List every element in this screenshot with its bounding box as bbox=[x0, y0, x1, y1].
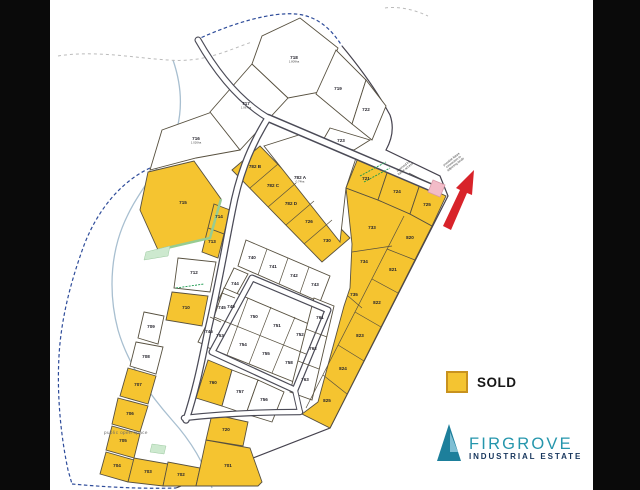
lot-number-label: 708 bbox=[142, 354, 150, 359]
lot-number-label: 763 bbox=[301, 377, 309, 382]
lot-number-label: 758 bbox=[285, 360, 293, 365]
legend-sold-label: SOLD bbox=[477, 375, 517, 390]
lot-number-label: 743 bbox=[311, 282, 319, 287]
lot-number-label: 740 bbox=[248, 255, 256, 260]
lot-number-label: 823 bbox=[356, 333, 364, 338]
lot-number-label: 755 bbox=[262, 351, 270, 356]
lot-number-label: 702 bbox=[177, 472, 185, 477]
lot-number-label: 723 bbox=[337, 138, 345, 143]
lot-number-label: 782 D bbox=[285, 201, 298, 206]
lot-number-label: 721 bbox=[362, 176, 370, 181]
logo-title: FIRGROVE bbox=[469, 436, 582, 452]
lot-number-label: 762 bbox=[309, 346, 317, 351]
lot-number-label: 703 bbox=[144, 469, 152, 474]
right-black-bar bbox=[593, 0, 640, 490]
sold-color-swatch bbox=[446, 371, 468, 393]
lot-number-label: 742 bbox=[290, 273, 298, 278]
lot-number-label: 750 bbox=[250, 314, 258, 319]
lot-number-label: 706 bbox=[126, 411, 134, 416]
lot-number-label: 824 bbox=[339, 366, 347, 371]
lot-number-label: 760 bbox=[209, 380, 217, 385]
lot-number-label: 701 bbox=[224, 463, 232, 468]
lot-number-label: 820 bbox=[406, 235, 414, 240]
lot-number-label: 757 bbox=[236, 389, 244, 394]
green-open-area bbox=[150, 444, 166, 454]
logo-triangle-icon bbox=[436, 423, 462, 463]
lot-number-label: 752 bbox=[296, 332, 304, 337]
lot-number-label: 730 bbox=[323, 238, 331, 243]
lot-number-label: 751 bbox=[273, 323, 281, 328]
lot-area-label: 1.026ha bbox=[191, 141, 202, 145]
screenshot-stage: reserved forfuture accesspossible future… bbox=[0, 0, 640, 490]
lot-number-label: 782 B bbox=[249, 164, 262, 169]
lot-number-label: 720 bbox=[222, 427, 230, 432]
lot-number-label: 735 bbox=[350, 292, 358, 297]
lot-number-label: 714 bbox=[215, 214, 223, 219]
legend-sold: SOLD bbox=[446, 371, 517, 393]
logo-subtitle: INDUSTRIAL ESTATE bbox=[469, 452, 582, 462]
lot-number-label: 724 bbox=[393, 189, 401, 194]
lot-number-label: 712 bbox=[190, 270, 198, 275]
lot-area-label: 0.74ha bbox=[296, 180, 305, 184]
firgrove-logo: FIRGROVE INDUSTRIAL ESTATE bbox=[436, 423, 582, 463]
lot-712 bbox=[174, 258, 216, 292]
lot-area-label: 1.067ha bbox=[241, 106, 252, 110]
lot-number-label: 761 bbox=[316, 315, 324, 320]
lot-number-label: 754 bbox=[239, 342, 247, 347]
lot-number-label: 744 bbox=[231, 281, 239, 286]
lot-number-label: 782 C bbox=[267, 183, 280, 188]
lot-number-label: 704 bbox=[113, 463, 121, 468]
lot-number-label: 725 bbox=[423, 202, 431, 207]
estate-site-plan-map: reserved forfuture accesspossible future… bbox=[0, 0, 640, 490]
lot-number-label: 745 bbox=[218, 305, 226, 310]
lot-number-label: 705 bbox=[119, 438, 127, 443]
lot-number-label: 722 bbox=[362, 107, 370, 112]
lot-number-label: 713 bbox=[208, 239, 216, 244]
lot-number-label: 821 bbox=[389, 267, 397, 272]
lot-number-label: 749 bbox=[227, 304, 235, 309]
lot-number-label: 715 bbox=[179, 200, 187, 205]
lot-number-label: 825 bbox=[323, 398, 331, 403]
lot-number-label: 741 bbox=[269, 264, 277, 269]
lot-number-label: 756 bbox=[260, 397, 268, 402]
lot-number-label: 707 bbox=[134, 382, 142, 387]
lot-number-label: 709 bbox=[147, 324, 155, 329]
lot-number-label: 733 bbox=[368, 225, 376, 230]
lot-number-label: 734 bbox=[360, 259, 368, 264]
lot-number-label: 746 bbox=[205, 329, 213, 334]
lot-number-label: 710 bbox=[182, 305, 190, 310]
lot-number-label: 753 bbox=[216, 333, 224, 338]
public-open-space-label: public open space bbox=[104, 430, 148, 435]
lot-number-label: 719 bbox=[334, 86, 342, 91]
lot-number-label: 822 bbox=[373, 300, 381, 305]
lot-number-label: 726 bbox=[305, 219, 313, 224]
lot-area-label: 1.809ha bbox=[289, 60, 300, 64]
left-black-bar bbox=[0, 0, 50, 490]
